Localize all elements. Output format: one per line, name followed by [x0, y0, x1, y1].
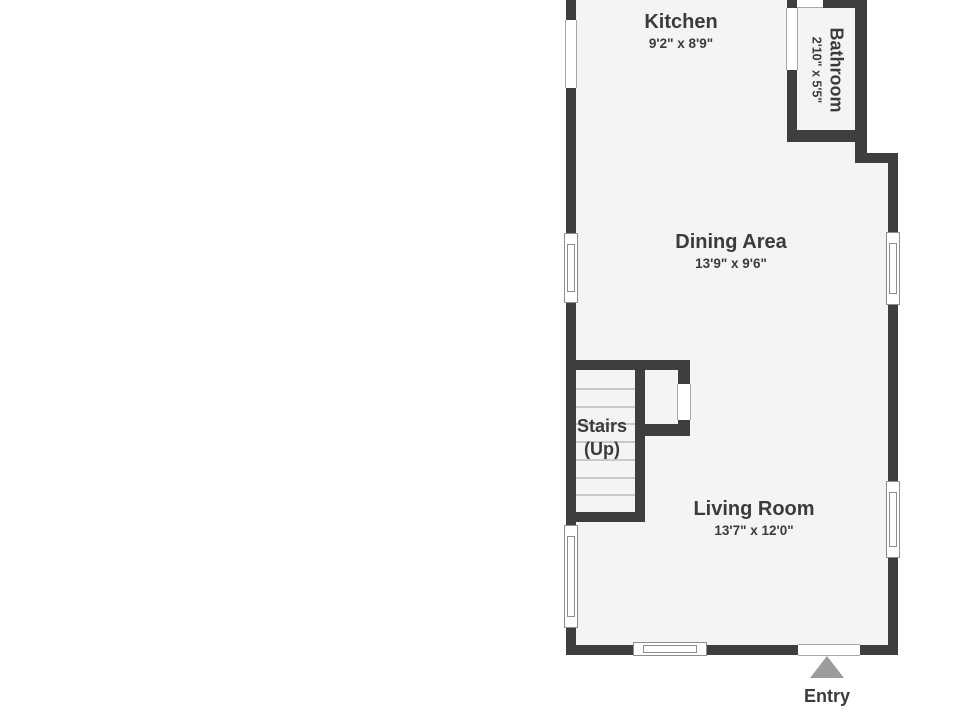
wall-right: [888, 153, 898, 655]
stair-tread-line: [576, 388, 635, 390]
window-left-living: [564, 525, 578, 628]
door-opening-stairs: [677, 384, 691, 420]
wall-bathroom-partition-top: [787, 0, 797, 8]
bathroom-name: Bathroom: [826, 13, 848, 128]
window-bottom-living: [633, 642, 707, 656]
entry-arrow-icon: [810, 656, 844, 678]
dining-name: Dining Area: [651, 230, 811, 254]
outside-notch: [867, 0, 888, 153]
window-bathroom-top-cut: [797, 0, 823, 8]
floor-plan: Kitchen 9'2" x 8'9" Bathroom 2'10" x 5'5…: [0, 0, 960, 720]
door-opening-bathroom: [786, 8, 798, 70]
stair-tread-line: [576, 494, 635, 496]
window-right-living: [886, 481, 900, 558]
kitchen-dimensions: 9'2" x 8'9": [601, 35, 761, 53]
living-name: Living Room: [674, 497, 834, 521]
wall-bathroom-partition: [787, 70, 797, 130]
kitchen-name: Kitchen: [601, 10, 761, 34]
window-left-dining: [564, 233, 578, 303]
wall-stairs-top: [566, 360, 690, 370]
bathroom-label: Bathroom 2'10" x 5'5": [804, 13, 848, 128]
dining-label: Dining Area 13'9" x 9'6": [651, 230, 811, 273]
dining-dimensions: 13'9" x 9'6": [651, 255, 811, 273]
wall-stairs-bottom: [566, 512, 645, 522]
stair-tread-line: [576, 406, 635, 408]
stair-tread-line: [576, 477, 635, 479]
wall-bathroom-bottom: [787, 130, 867, 142]
stairs-line2: (Up): [552, 438, 652, 461]
wall-nook-right-upper: [678, 360, 690, 384]
kitchen-label: Kitchen 9'2" x 8'9": [601, 10, 761, 53]
entry-label: Entry: [787, 686, 867, 707]
stairs-label: Stairs (Up): [552, 415, 652, 461]
living-dimensions: 13'7" x 12'0": [674, 522, 834, 540]
window-right-dining: [886, 232, 900, 305]
door-opening-entry: [798, 644, 860, 656]
wall-bathroom-top-remnant: [823, 0, 855, 8]
door-opening-kitchen-left: [565, 20, 577, 88]
bathroom-dimensions: 2'10" x 5'5": [809, 13, 825, 128]
living-label: Living Room 13'7" x 12'0": [674, 497, 834, 540]
stairs-line1: Stairs: [552, 415, 652, 438]
